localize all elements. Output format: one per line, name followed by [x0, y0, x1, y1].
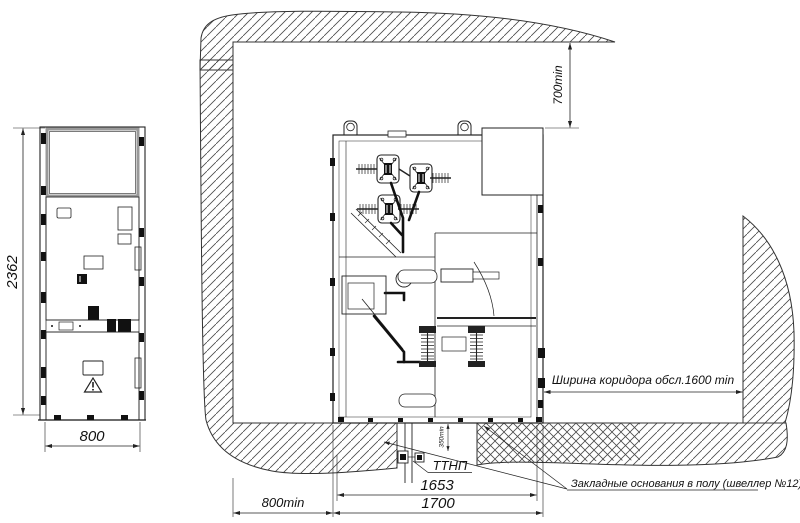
drawing-canvas: 2362 800 700min Ширина коридора обсл.160…	[0, 0, 800, 523]
dim-trench-label: 350min	[439, 426, 446, 448]
dim-1653: 1653	[338, 477, 537, 495]
wall-right	[743, 216, 794, 423]
rear-box	[482, 128, 543, 195]
dim-front-height: 2362	[4, 128, 45, 415]
feet	[54, 415, 128, 420]
door-handle-upper	[135, 247, 141, 270]
dim-front-height-label: 2362	[4, 255, 21, 290]
wall-top	[200, 11, 615, 70]
door-handle-lower	[135, 358, 141, 388]
dim-front-clearance-label: 800min	[262, 495, 305, 510]
dim-1700: 1700	[334, 495, 543, 513]
dim-corridor: Ширина коридора обсл.1600 min	[544, 373, 743, 392]
dim-1653-label: 1653	[420, 477, 454, 494]
label-ttnp-text: ТТНП	[433, 458, 468, 473]
dim-front-width: 800	[45, 422, 140, 452]
upper-door	[46, 197, 139, 320]
relay-compartment	[47, 129, 138, 196]
front-view	[38, 127, 146, 420]
dim-trench: 350min	[439, 424, 449, 451]
warning-triangle-icon	[85, 378, 102, 392]
installation-drawing: 2362 800 700min Ширина коридора обсл.160…	[0, 0, 800, 523]
dim-rear-clearance: 700min	[545, 43, 579, 128]
dim-front-width-label: 800	[79, 428, 105, 445]
nameplate	[83, 361, 103, 375]
lower-door	[46, 332, 139, 420]
dim-front-clearance: 800min	[234, 495, 333, 513]
floor-crosshatch	[477, 423, 640, 464]
dim-1700-label: 1700	[421, 495, 455, 512]
dim-corridor-label: Ширина коридора обсл.1600 min	[552, 373, 735, 387]
door-lock	[77, 274, 87, 284]
note-foundation-text: Закладные основания в полу (швеллер №12)	[571, 478, 800, 490]
dim-rear-clearance-label: 700min	[551, 65, 565, 105]
